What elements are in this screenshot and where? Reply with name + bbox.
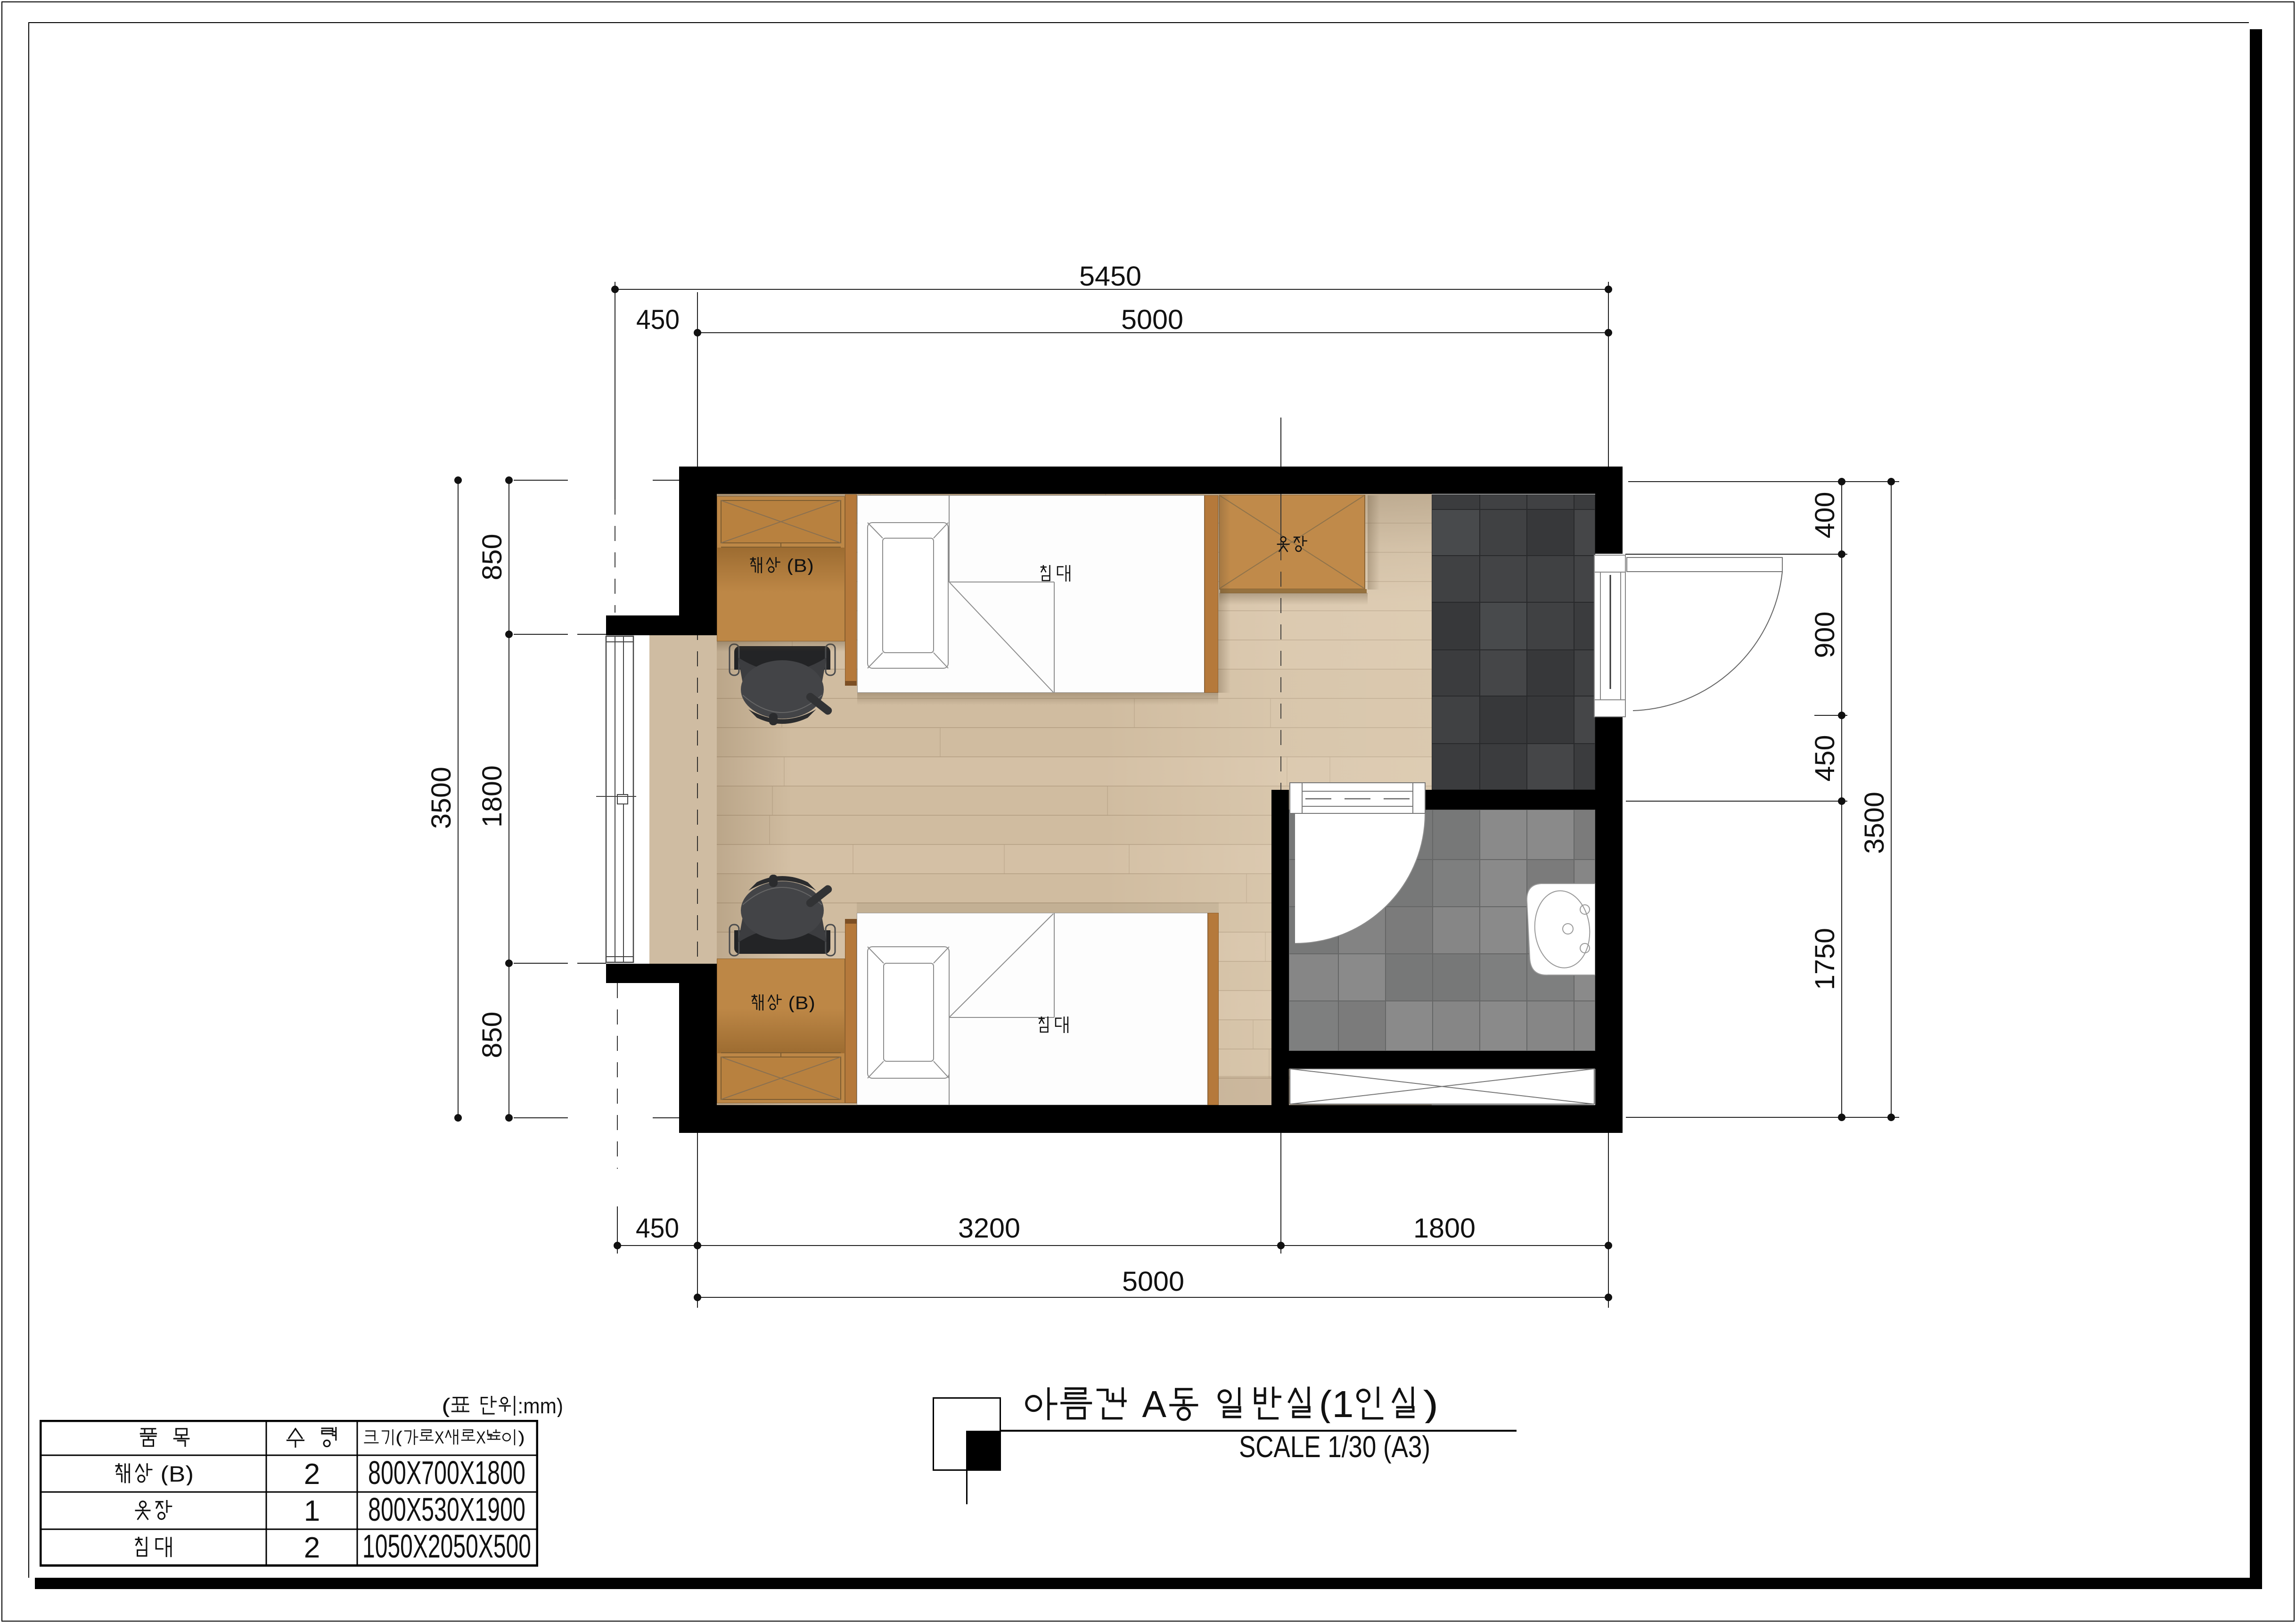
svg-text:800X700X1800: 800X700X1800 — [368, 1454, 525, 1491]
svg-text:1050X2050X500: 1050X2050X500 — [362, 1528, 531, 1565]
svg-text:2: 2 — [304, 1458, 320, 1491]
svg-text:2: 2 — [304, 1532, 320, 1564]
svg-text:1: 1 — [304, 1495, 320, 1527]
svg-text::mm): :mm) — [517, 1396, 563, 1417]
svg-text:(: ( — [442, 1396, 451, 1417]
svg-text:800X530X1900: 800X530X1900 — [368, 1491, 525, 1528]
